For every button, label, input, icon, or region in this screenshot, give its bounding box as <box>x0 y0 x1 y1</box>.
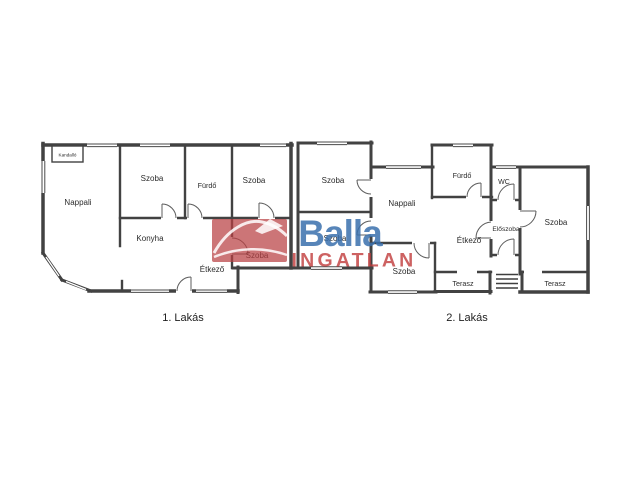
room-label-wc: WC <box>498 179 510 186</box>
apartment-2-doors <box>357 180 536 258</box>
floorplan-svg: Kandalló Nappali Szoba Fürdő Szoba Konyh… <box>0 0 640 480</box>
room-label-terasz-1: Terasz <box>452 279 474 288</box>
room-label-kandallo: Kandalló <box>59 153 77 158</box>
room-label-szoba-2: Szoba <box>243 176 266 185</box>
stairs <box>496 275 518 289</box>
apartment-2-caption: 2. Lakás <box>446 312 488 324</box>
room-label-szoba-1: Szoba <box>141 174 164 183</box>
floorplan-image: Kandalló Nappali Szoba Fürdő Szoba Konyh… <box>0 0 640 480</box>
door-opening <box>457 269 477 276</box>
room-label-konyha: Konyha <box>136 234 164 243</box>
room-label-szoba-7: Szoba <box>545 218 568 227</box>
room-label-eloszoba: Előszoba <box>492 226 519 233</box>
bay-window <box>46 257 59 276</box>
door-opening <box>187 215 203 221</box>
bay-window <box>66 282 86 290</box>
room-label-terasz-2: Terasz <box>544 279 566 288</box>
door-opening <box>497 197 515 204</box>
room-label-furdo-2: Fürdő <box>453 171 472 180</box>
door-opening <box>524 269 542 276</box>
room-label-szoba-4: Szoba <box>322 176 345 185</box>
room-label-etkezo-1: Étkező <box>200 265 225 274</box>
room-label-nappali-2: Nappali <box>388 199 415 208</box>
door-opening <box>497 252 515 259</box>
watermark-brand-text: Balla <box>298 213 383 254</box>
apartment-1-caption: 1. Lakás <box>162 312 204 324</box>
door-opening <box>176 288 192 294</box>
watermark-brand-subtext: INGATLAN <box>292 250 417 272</box>
room-label-etkezo-2: Étkező <box>457 236 482 245</box>
door-opening <box>161 215 177 221</box>
door-opening <box>466 194 482 201</box>
room-label-furdo-1: Fürdő <box>198 181 217 190</box>
room-label-nappali-1: Nappali <box>64 198 91 207</box>
